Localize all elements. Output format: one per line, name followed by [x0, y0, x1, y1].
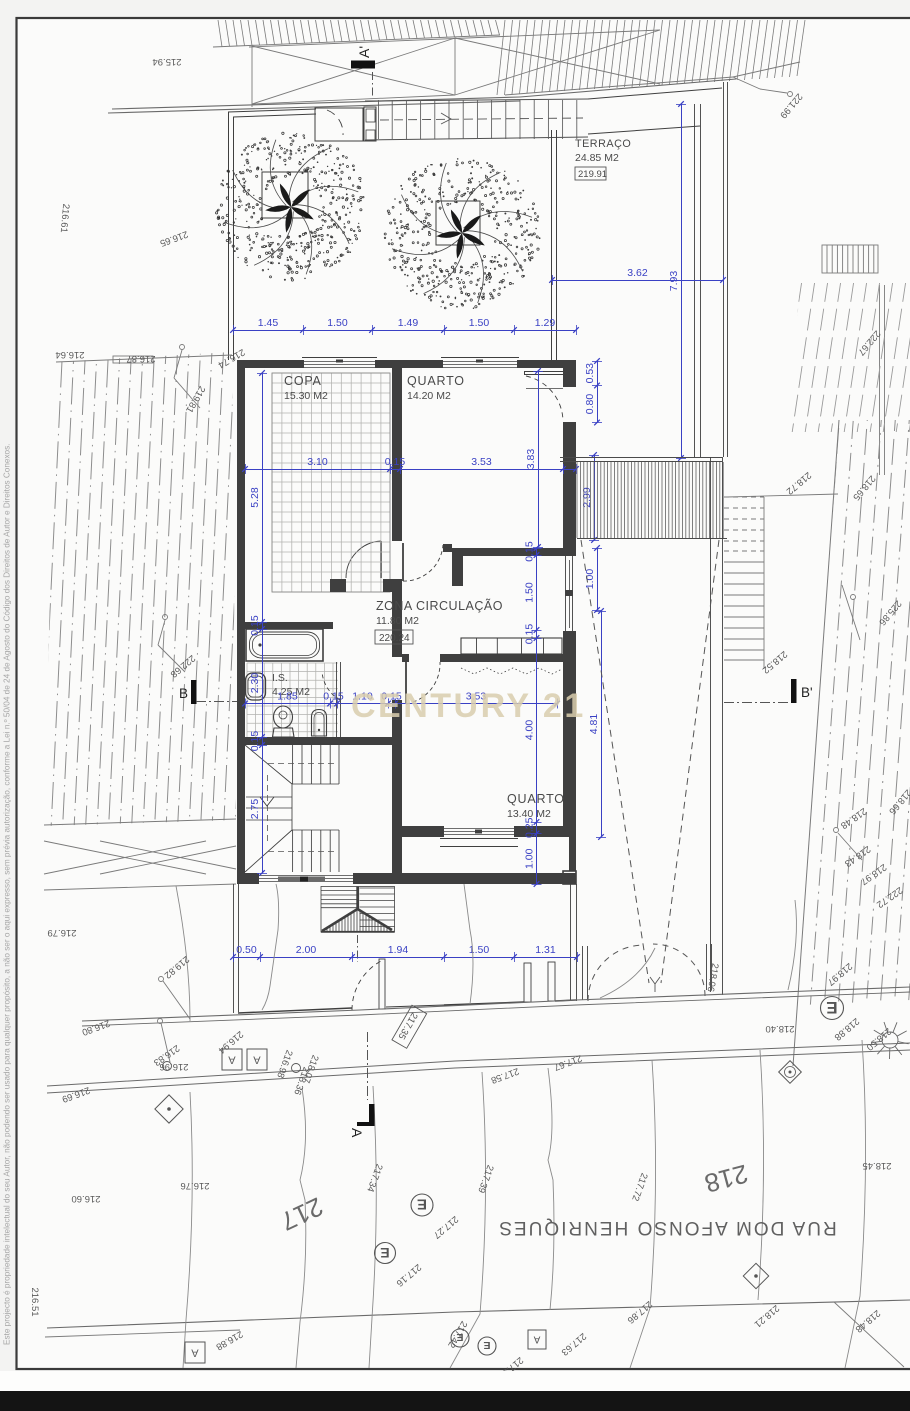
svg-text:Este projecto é propriedade in: Este projecto é propriedade intelectual …	[3, 444, 12, 1345]
svg-text:A: A	[228, 1054, 236, 1066]
svg-text:1.00: 1.00	[584, 569, 596, 590]
svg-text:1.29: 1.29	[535, 317, 556, 329]
svg-text:0.15: 0.15	[249, 615, 261, 636]
svg-text:218.40: 218.40	[765, 1023, 794, 1034]
svg-text:3.53: 3.53	[471, 456, 492, 468]
svg-text:E: E	[826, 998, 837, 1017]
svg-text:2.75: 2.75	[249, 799, 261, 820]
svg-text:E: E	[380, 1245, 389, 1261]
svg-text:0.15: 0.15	[249, 731, 261, 752]
svg-text:0.15: 0.15	[385, 456, 406, 468]
svg-text:3.10: 3.10	[307, 456, 328, 468]
svg-text:E: E	[417, 1196, 427, 1213]
svg-text:1.85: 1.85	[277, 691, 298, 703]
svg-text:RUA DOM AFONSO HENRIQUES: RUA DOM AFONSO HENRIQUES	[497, 1217, 836, 1238]
svg-text:218.45: 218.45	[862, 1160, 891, 1171]
svg-text:0.15: 0.15	[524, 624, 536, 645]
svg-text:3.83: 3.83	[525, 449, 537, 470]
svg-text:0.15: 0.15	[524, 541, 536, 562]
svg-text:216.60: 216.60	[71, 1193, 100, 1204]
svg-text:3.62: 3.62	[627, 267, 648, 279]
svg-text:B': B'	[801, 685, 813, 700]
svg-text:COPA: COPA	[284, 374, 322, 388]
svg-text:220.24: 220.24	[379, 633, 410, 644]
svg-text:219.91: 219.91	[578, 169, 607, 180]
svg-text:216.87: 216.87	[126, 353, 155, 364]
svg-text:24.85 M2: 24.85 M2	[575, 152, 619, 164]
svg-text:QUARTO: QUARTO	[507, 792, 565, 806]
svg-text:4.81: 4.81	[588, 714, 600, 735]
svg-text:0.15: 0.15	[323, 691, 344, 703]
svg-text:0.25: 0.25	[524, 817, 536, 838]
svg-text:0.53: 0.53	[584, 363, 596, 384]
svg-text:1.31: 1.31	[535, 944, 556, 956]
svg-text:216.64: 216.64	[55, 349, 84, 360]
svg-text:11.80 M2: 11.80 M2	[376, 615, 419, 627]
svg-text:1.50: 1.50	[524, 582, 536, 603]
svg-text:5.28: 5.28	[249, 487, 261, 508]
svg-text:216.76: 216.76	[180, 1180, 209, 1191]
svg-text:15.30 M2: 15.30 M2	[284, 390, 328, 402]
svg-text:0.50: 0.50	[236, 944, 257, 956]
svg-text:1.94: 1.94	[388, 944, 409, 956]
svg-text:ZONA CIRCULAÇÃO: ZONA CIRCULAÇÃO	[376, 599, 503, 613]
svg-text:A: A	[349, 1128, 365, 1138]
svg-text:14.20 M2: 14.20 M2	[407, 390, 451, 402]
svg-text:A: A	[253, 1054, 261, 1066]
svg-text:1.49: 1.49	[398, 317, 419, 329]
svg-text:7.93: 7.93	[668, 271, 680, 292]
svg-text:2.00: 2.00	[296, 944, 317, 956]
svg-text:1.00: 1.00	[524, 848, 536, 869]
svg-text:2.30: 2.30	[249, 673, 261, 694]
svg-text:1.45: 1.45	[258, 317, 279, 329]
svg-text:216.79: 216.79	[47, 927, 76, 938]
svg-text:QUARTO: QUARTO	[407, 374, 465, 388]
svg-text:1.50: 1.50	[327, 317, 348, 329]
svg-text:TERRAÇO: TERRAÇO	[575, 138, 631, 150]
svg-text:B: B	[179, 686, 188, 701]
svg-text:216.51: 216.51	[29, 1287, 40, 1316]
svg-text:A': A'	[356, 46, 372, 58]
svg-text:0.80: 0.80	[584, 394, 596, 415]
svg-text:E: E	[483, 1339, 490, 1351]
svg-text:CENTURY 21: CENTURY 21	[351, 687, 586, 725]
svg-text:215.94: 215.94	[152, 56, 181, 67]
svg-text:A: A	[191, 1347, 199, 1359]
svg-text:1.50: 1.50	[469, 317, 490, 329]
svg-text:A: A	[533, 1334, 540, 1345]
svg-text:I.S.: I.S.	[272, 672, 288, 684]
